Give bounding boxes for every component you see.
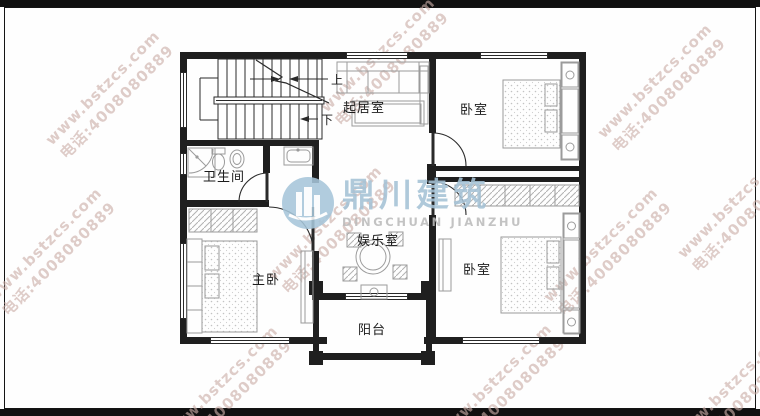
stair-label-down: 下	[321, 113, 333, 127]
door-bedroom-ne	[433, 133, 466, 166]
bed-ne	[503, 62, 579, 160]
window-west-bath	[180, 153, 187, 175]
toilet	[212, 148, 225, 170]
desk-se	[439, 239, 451, 291]
sofa	[337, 62, 429, 93]
door-master	[269, 207, 313, 251]
stair-arrow-down	[300, 116, 309, 122]
window-south-bedroom	[462, 337, 540, 344]
room-label-master: 主卧	[252, 273, 280, 288]
room-label-balcony: 阳台	[358, 323, 386, 338]
room-label-bathroom: 卫生间	[203, 170, 245, 185]
bed-master	[187, 239, 257, 333]
floor-plan: 起居室 卧室 卫生间 主卧 娱乐室 卧室 阳台 上 下	[0, 0, 760, 416]
floor-plan-page: www.bstzcs.com电话:4008080889www.bstzcs.co…	[0, 0, 760, 416]
window-west-stair	[180, 72, 187, 128]
window-north-bedroom	[480, 52, 548, 59]
room-label-living: 起居室	[343, 100, 385, 116]
stair-label-up: 上	[331, 73, 343, 87]
window-south-master	[210, 337, 290, 344]
window-north-living	[346, 52, 408, 59]
room-label-bedroom-se: 卧室	[463, 262, 491, 278]
bathroom-sink	[230, 150, 244, 168]
room-label-bedroom-ne: 卧室	[460, 102, 488, 118]
wardrobe-master	[189, 209, 257, 232]
room-label-recreation: 娱乐室	[357, 233, 399, 249]
window-west-master	[180, 243, 187, 319]
hall-washbasin	[284, 147, 313, 165]
wardrobe-se	[455, 185, 579, 206]
staircase	[200, 59, 329, 139]
bed-se	[501, 213, 580, 334]
